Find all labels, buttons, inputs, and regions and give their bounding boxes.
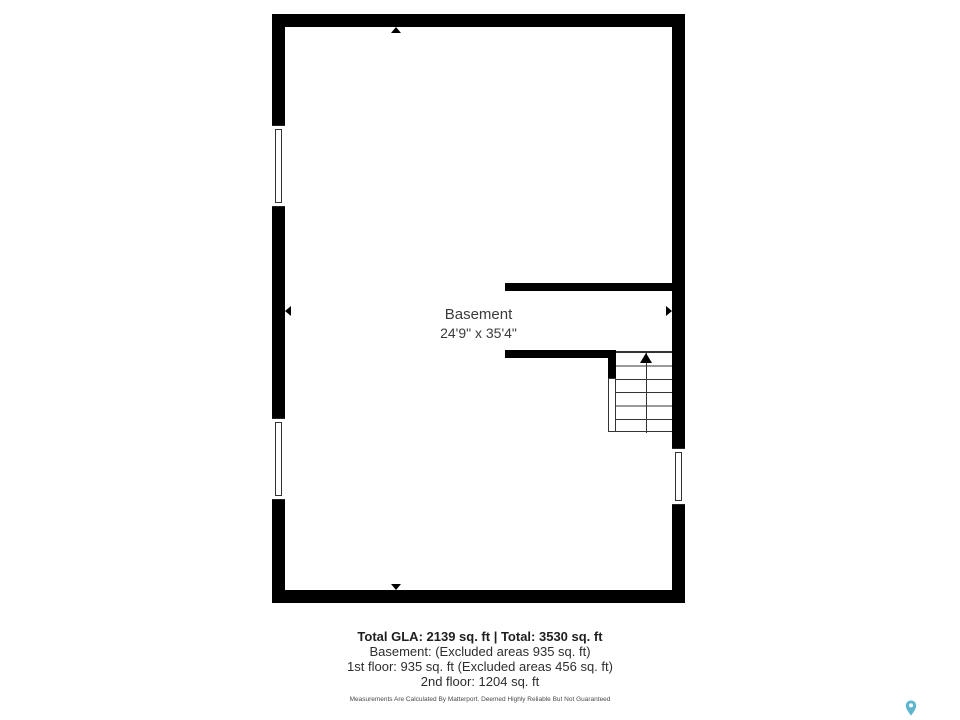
window-pane [275, 422, 282, 496]
room-label: Basement 24'9" x 35'4" [285, 306, 672, 342]
wall-interior-upper [505, 283, 672, 291]
wall-right [672, 14, 685, 603]
wall-stair-top [505, 350, 616, 358]
stair-run-line [646, 352, 647, 433]
stairs-up-arrow-icon [640, 353, 652, 363]
room-name: Basement [285, 306, 672, 324]
window-icon-right-lower [672, 448, 685, 505]
window-icon-left-lower [272, 418, 285, 500]
stair-railing [608, 378, 616, 432]
basement-area-line: Basement: (Excluded areas 935 sq. ft) [0, 644, 960, 659]
first-floor-area-line: 1st floor: 935 sq. ft (Excluded areas 45… [0, 659, 960, 674]
floor-plan-canvas: Basement 24'9" x 35'4" Total GLA: 2139 s… [0, 0, 960, 720]
total-gla-line: Total GLA: 2139 sq. ft | Total: 3530 sq.… [0, 629, 960, 644]
window-pane [275, 129, 282, 203]
second-floor-area-line: 2nd floor: 1204 sq. ft [0, 674, 960, 689]
staircase [616, 351, 672, 432]
area-summary: Total GLA: 2139 sq. ft | Total: 3530 sq.… [0, 629, 960, 704]
dimension-marker-bottom-icon [391, 584, 401, 590]
wall-bottom [272, 590, 685, 603]
map-pin-icon [905, 700, 917, 716]
dimension-marker-top-icon [391, 27, 401, 33]
measurement-disclaimer: Measurements Are Calculated By Matterpor… [0, 696, 960, 704]
wall-left [272, 14, 285, 603]
wall-stair-side [608, 350, 616, 378]
window-pane [675, 452, 682, 501]
room-dimensions: 24'9" x 35'4" [285, 324, 672, 342]
wall-top [272, 14, 685, 27]
window-icon-left-upper [272, 125, 285, 207]
